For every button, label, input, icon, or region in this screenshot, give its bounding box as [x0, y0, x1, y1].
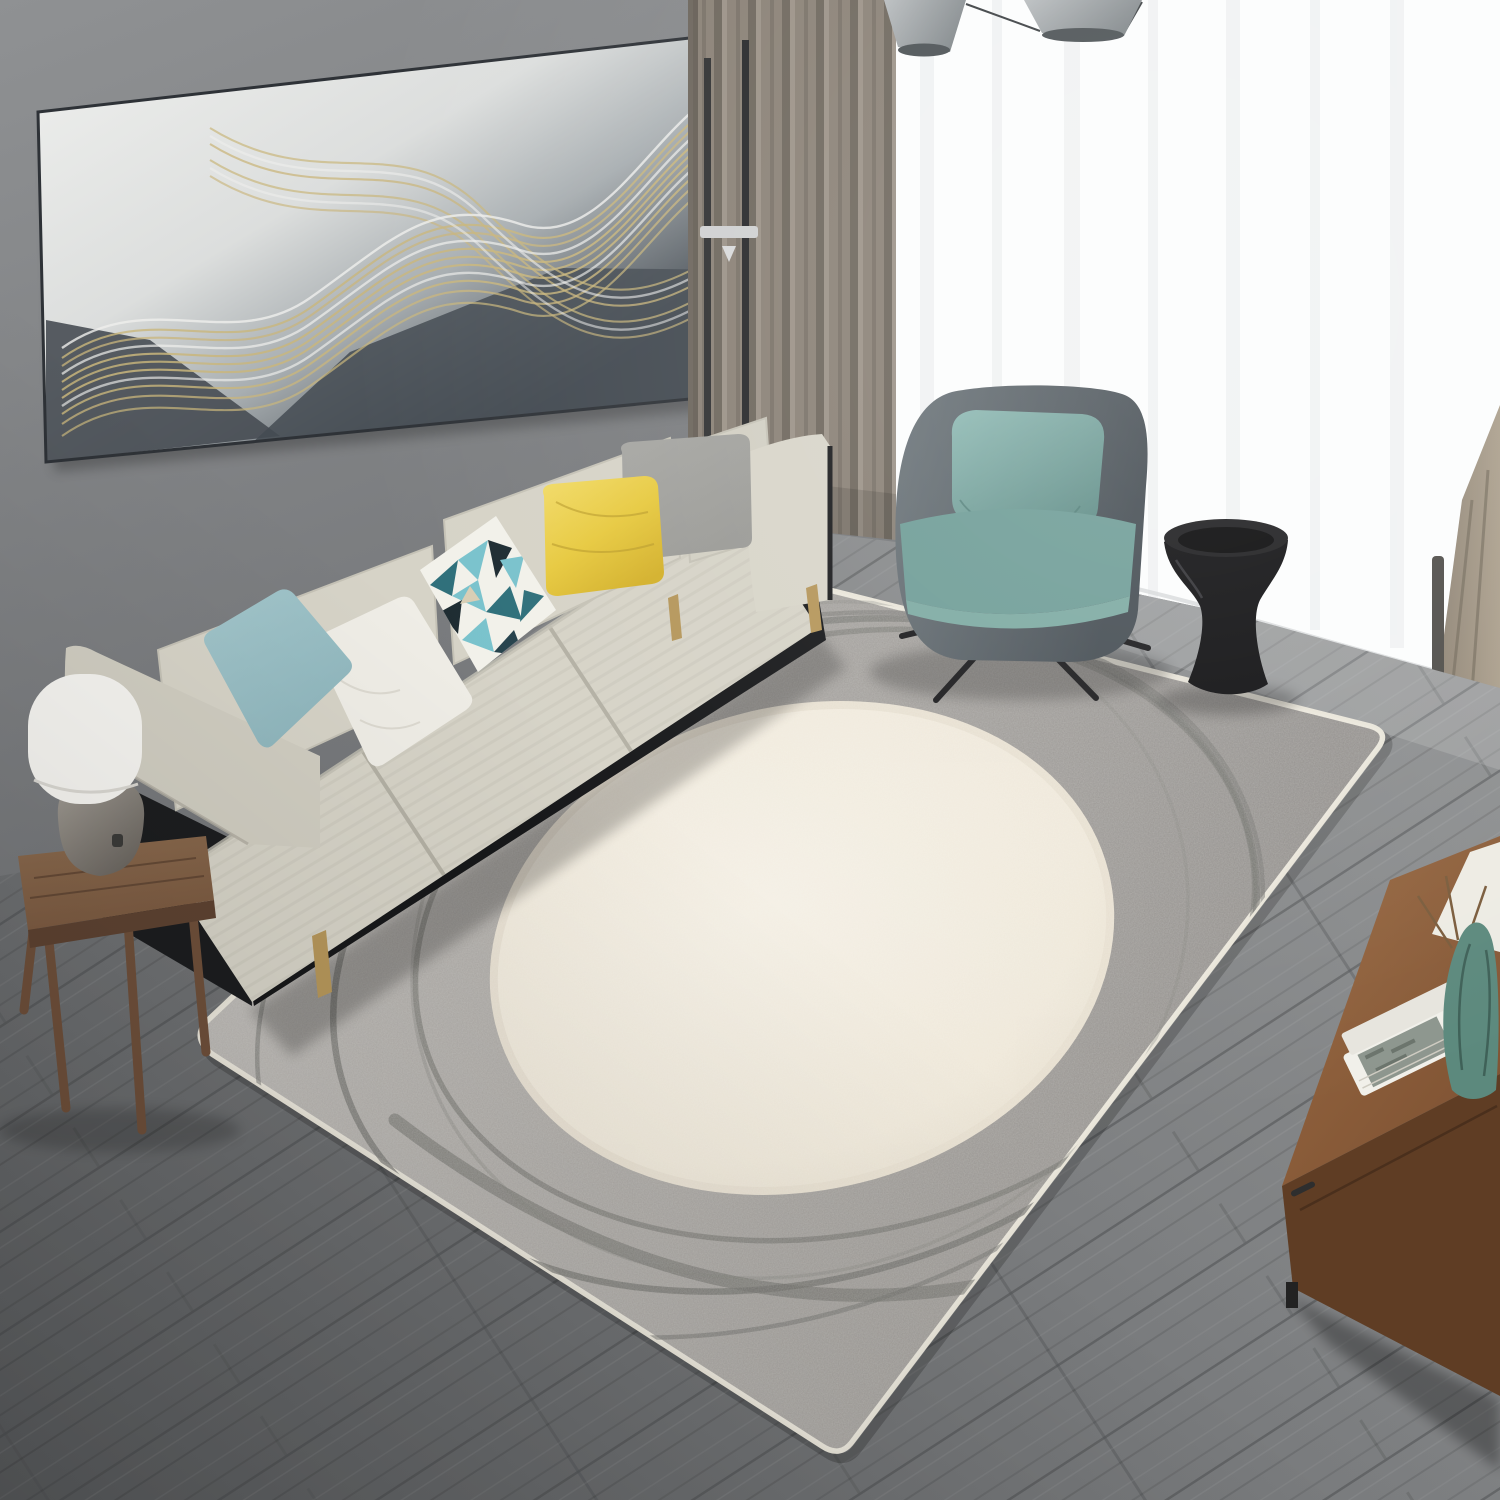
living-room-photo: [0, 0, 1500, 1500]
scene-svg: [0, 0, 1500, 1500]
light-overlays: [0, 0, 1500, 1500]
corner-vignette: [0, 0, 1500, 1500]
